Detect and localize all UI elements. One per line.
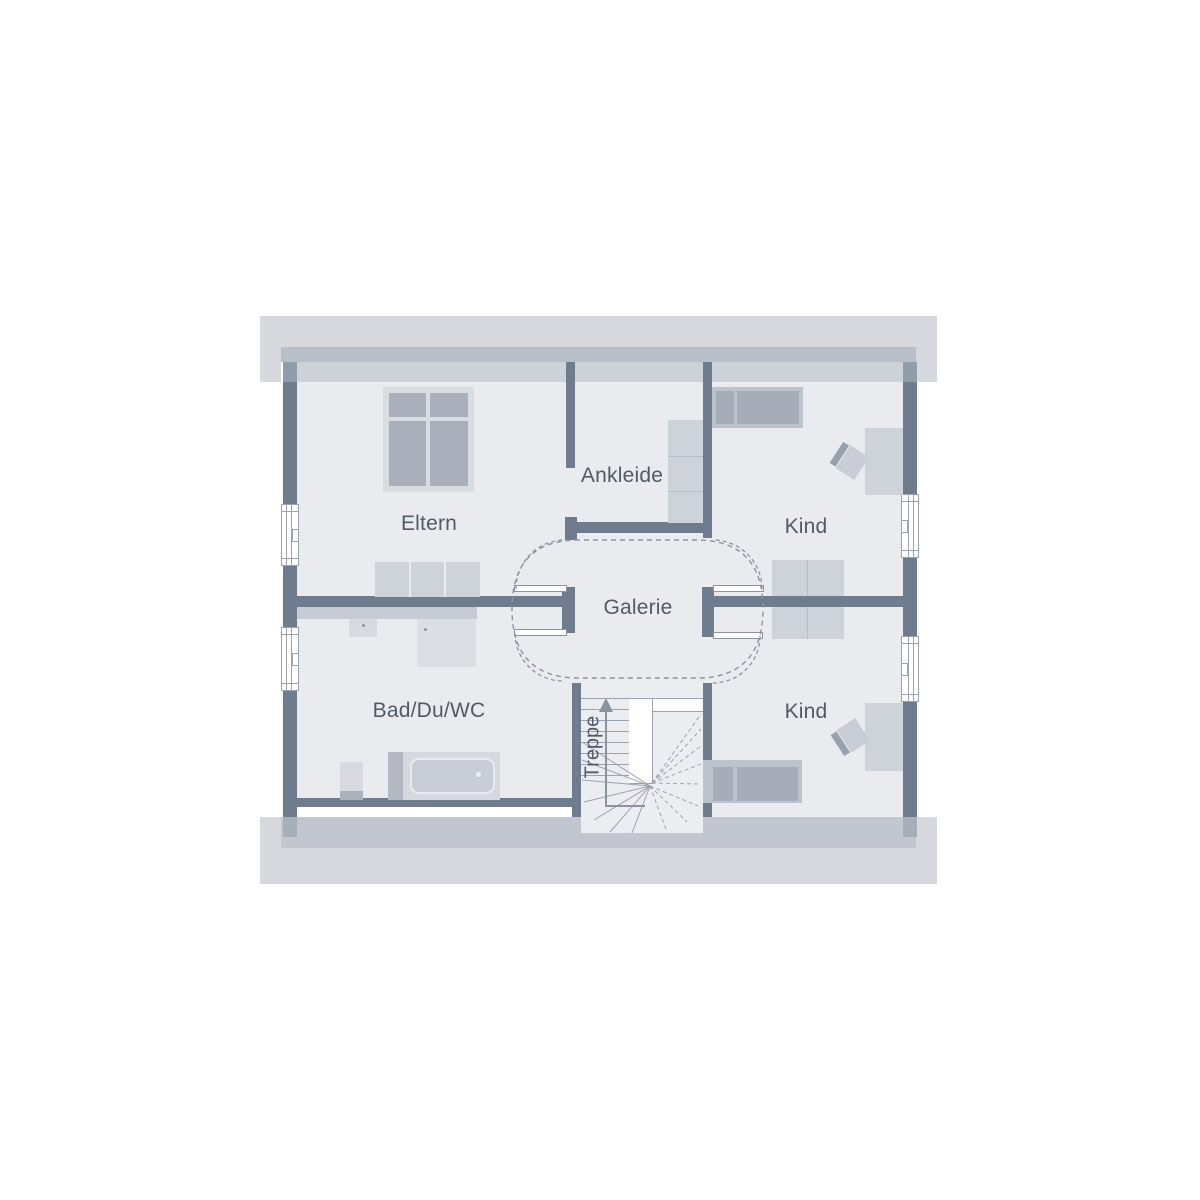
window-frame-tick	[902, 501, 918, 502]
window-frame-tick	[282, 558, 298, 559]
wardrobe-divider	[668, 456, 703, 457]
wardrobe-divider	[444, 562, 446, 597]
bath-counter	[297, 607, 477, 619]
bathtub-side-panel	[388, 752, 403, 800]
window-glass-line	[286, 505, 287, 565]
window-left-bad	[282, 628, 298, 690]
bed-kind-top	[712, 387, 803, 428]
room-label-kind-top: Kind	[785, 515, 828, 539]
wc-bowl	[340, 762, 363, 791]
roof-overhang-bottom-right-tab	[916, 817, 937, 848]
washbasin	[349, 619, 377, 637]
wardrobe-eltern	[375, 562, 480, 597]
top-exterior-wall-zone	[297, 362, 903, 382]
roof-overhang-bottom	[260, 848, 937, 884]
roof-void-strip	[297, 807, 572, 817]
window-glass-line	[913, 637, 914, 701]
window-frame-tick	[282, 511, 298, 512]
window-frame-tick	[902, 550, 918, 551]
double-bed-eltern	[383, 387, 474, 492]
bathtub	[403, 752, 500, 800]
wall-gable-right	[903, 362, 917, 817]
roof-overhang-top-right-tab	[916, 347, 937, 382]
wall-gable-right-top-cap	[903, 362, 917, 382]
bed-pillow	[713, 767, 733, 801]
window-right-kind-top	[902, 495, 918, 557]
room-label-bad: Bad/Du/WC	[373, 699, 486, 723]
desk-divider	[807, 607, 808, 639]
door-leaf-eltern	[514, 585, 567, 592]
wall-mid-left	[283, 596, 575, 607]
bed-mattress	[737, 391, 799, 424]
room-label-galerie: Galerie	[603, 596, 672, 620]
wall-cap-ankleide	[565, 517, 577, 540]
bed-pillow	[389, 393, 426, 417]
wall-mid-right	[712, 596, 903, 607]
door-leaf-kind-bottom	[713, 632, 763, 639]
desk-kind-bottom	[865, 703, 903, 771]
faucet-dot	[362, 624, 365, 627]
window-glass-line	[286, 628, 287, 690]
wall-eltern-ankleide	[566, 362, 575, 468]
floorplan-canvas: Eltern Ankleide Kind Galerie Bad/Du/WC K…	[0, 0, 1200, 1200]
room-label-treppe: Treppe	[582, 716, 605, 779]
bed-pillow	[430, 393, 468, 417]
room-label-eltern: Eltern	[401, 512, 457, 536]
shower	[417, 619, 476, 667]
wall-stair-left	[572, 683, 581, 817]
window-handle	[292, 529, 299, 542]
room-label-kind-bottom: Kind	[785, 700, 828, 724]
desk-galerie-lower	[772, 607, 844, 639]
door-leaf-kind-top	[713, 585, 764, 592]
bed-pillow	[716, 391, 734, 424]
window-left-eltern	[282, 505, 298, 565]
window-frame-tick	[902, 694, 918, 695]
window-right-kind-bottom	[902, 637, 918, 701]
wc-tank	[340, 791, 363, 800]
room-label-ankleide: Ankleide	[581, 464, 663, 488]
wall-gable-left-bottom-cap	[283, 817, 297, 837]
desk-kind-top	[865, 428, 903, 495]
stair-tread	[581, 709, 629, 710]
window-frame-tick	[282, 683, 298, 684]
window-glass-line	[908, 637, 909, 701]
wall-gable-left-top-cap	[283, 362, 297, 382]
bed-mattress	[430, 421, 468, 486]
door-leaf-bad	[514, 629, 567, 636]
roof-overhang-bottom-left-tab	[260, 817, 281, 848]
stair-void-column	[629, 699, 653, 784]
wall-ankleide-kind	[703, 362, 712, 538]
wardrobe-divider	[409, 562, 411, 597]
window-glass-line	[913, 495, 914, 557]
drain-dot	[424, 628, 427, 631]
wall-gable-left	[283, 362, 297, 817]
wall-cap-mid-left	[562, 587, 575, 633]
desk-galerie-upper	[772, 560, 844, 596]
roof-overhang-top-left-tab	[260, 347, 281, 382]
bathtub-drain-dot	[476, 772, 481, 777]
window-frame-tick	[902, 643, 918, 644]
bathtub-basin	[410, 758, 495, 794]
window-handle	[292, 653, 299, 666]
wall-cap-mid-right	[702, 587, 714, 637]
roof-overhang-top	[260, 316, 937, 347]
wall-gable-right-bottom-cap	[903, 817, 917, 837]
window-frame-tick	[282, 634, 298, 635]
bed-mattress	[389, 421, 426, 486]
bed-kind-bottom	[703, 760, 802, 803]
window-glass-line	[908, 495, 909, 557]
wardrobe-ankleide	[668, 420, 703, 523]
window-handle	[901, 520, 908, 533]
eave-band-top	[281, 347, 916, 362]
wardrobe-divider	[668, 491, 703, 492]
desk-divider	[807, 560, 808, 596]
wall-ankleide-south	[566, 522, 703, 533]
window-handle	[901, 663, 908, 676]
bed-mattress	[737, 767, 798, 801]
